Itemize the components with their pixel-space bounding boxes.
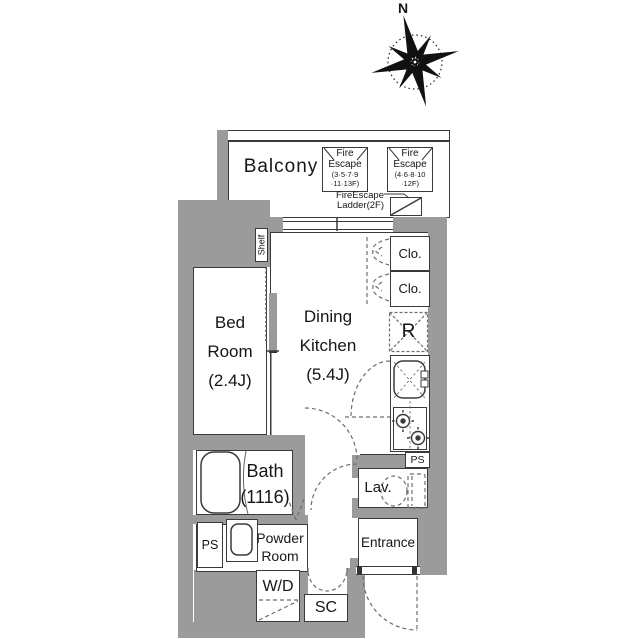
lav-door-swing (311, 464, 357, 510)
fire-escape-ladder-label: FireEscape Ladder(2F) (318, 191, 384, 211)
shoe-closet-label: SC (304, 594, 348, 622)
lavatory-label: Lav. (356, 479, 400, 496)
washer-dryer-label: W/D (256, 578, 300, 596)
bath-label: Bath (1116) (228, 458, 302, 510)
dk-door-swing (305, 408, 357, 460)
sc-door-fold (308, 568, 347, 591)
washer-dryer-marks (259, 600, 298, 620)
entrance-label: Entrance (356, 535, 420, 550)
compass-rose-icon (360, 5, 470, 118)
pipe-space-right-label: PS (405, 452, 430, 468)
bedroom-label: Bed Room (2.4J) (193, 308, 267, 395)
stove-burners-icon (392, 410, 429, 449)
fire-escape-right-label: Fire Escape (4·6·8·10 ·12F) (387, 149, 433, 188)
wash-basin-icon (231, 524, 252, 555)
pipe-space-left-label: PS (197, 522, 223, 568)
powder-room-label: Powder Room (250, 530, 310, 565)
floor-plan: N Balcony Fire Escape (3·5·7·9 ·11·13F) … (0, 0, 640, 639)
fire-escape-left-label: Fire Escape (3·5·7·9 ·11·13F) (322, 149, 368, 188)
dining-kitchen-label: Dining Kitchen (5.4J) (272, 302, 384, 389)
refrigerator-label: R (389, 312, 428, 352)
shelf-label: Shelf (256, 225, 268, 266)
closet-bottom-label: Clo. (390, 271, 430, 307)
closet-top-label: Clo. (390, 236, 430, 271)
entrance-door-swing (363, 576, 417, 630)
balcony-label: Balcony (238, 156, 324, 178)
compass-north-label: N (394, 0, 412, 16)
